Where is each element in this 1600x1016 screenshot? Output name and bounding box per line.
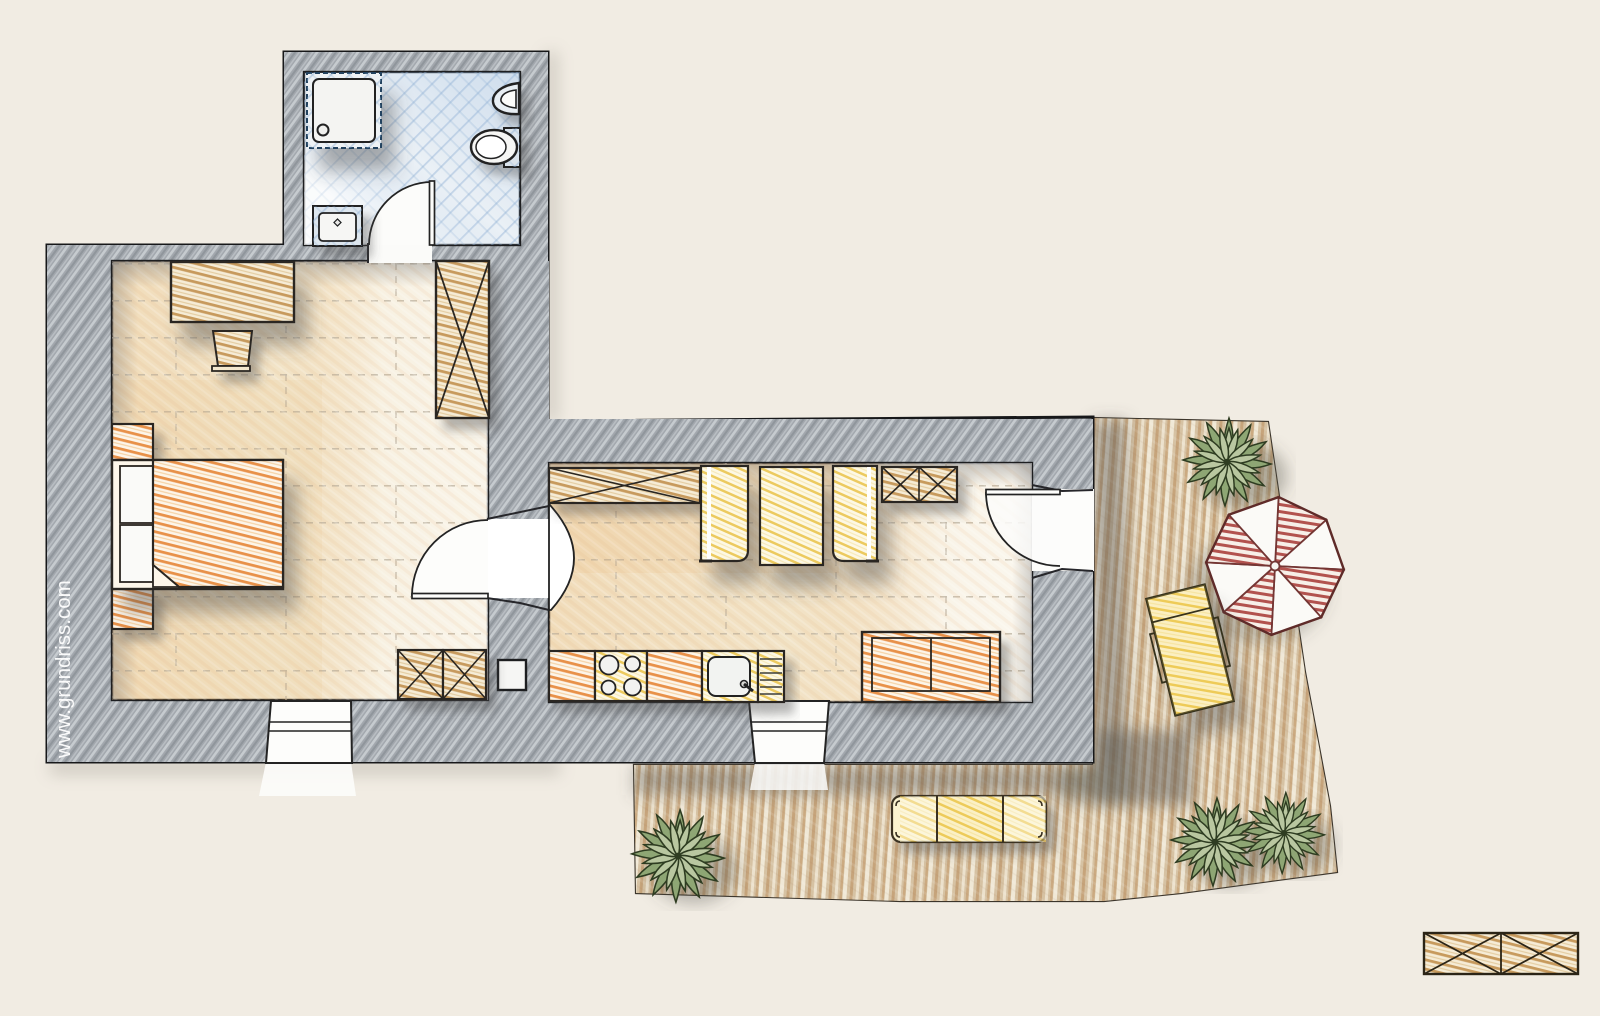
svg-text:www.grundriss.com: www.grundriss.com [52, 580, 75, 759]
